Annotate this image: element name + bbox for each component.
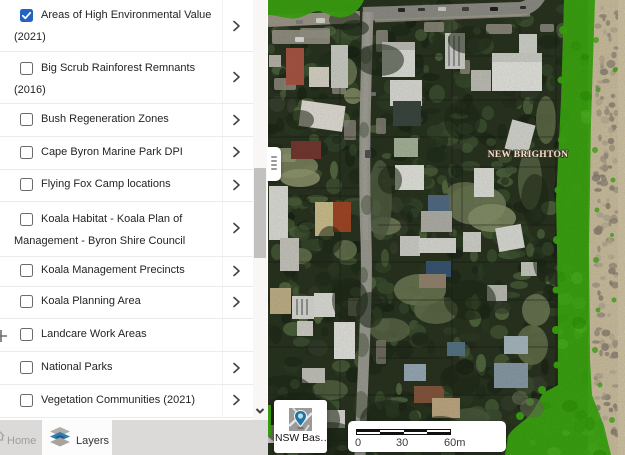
svg-text:NEW BRIGHTON: NEW BRIGHTON	[488, 150, 569, 160]
